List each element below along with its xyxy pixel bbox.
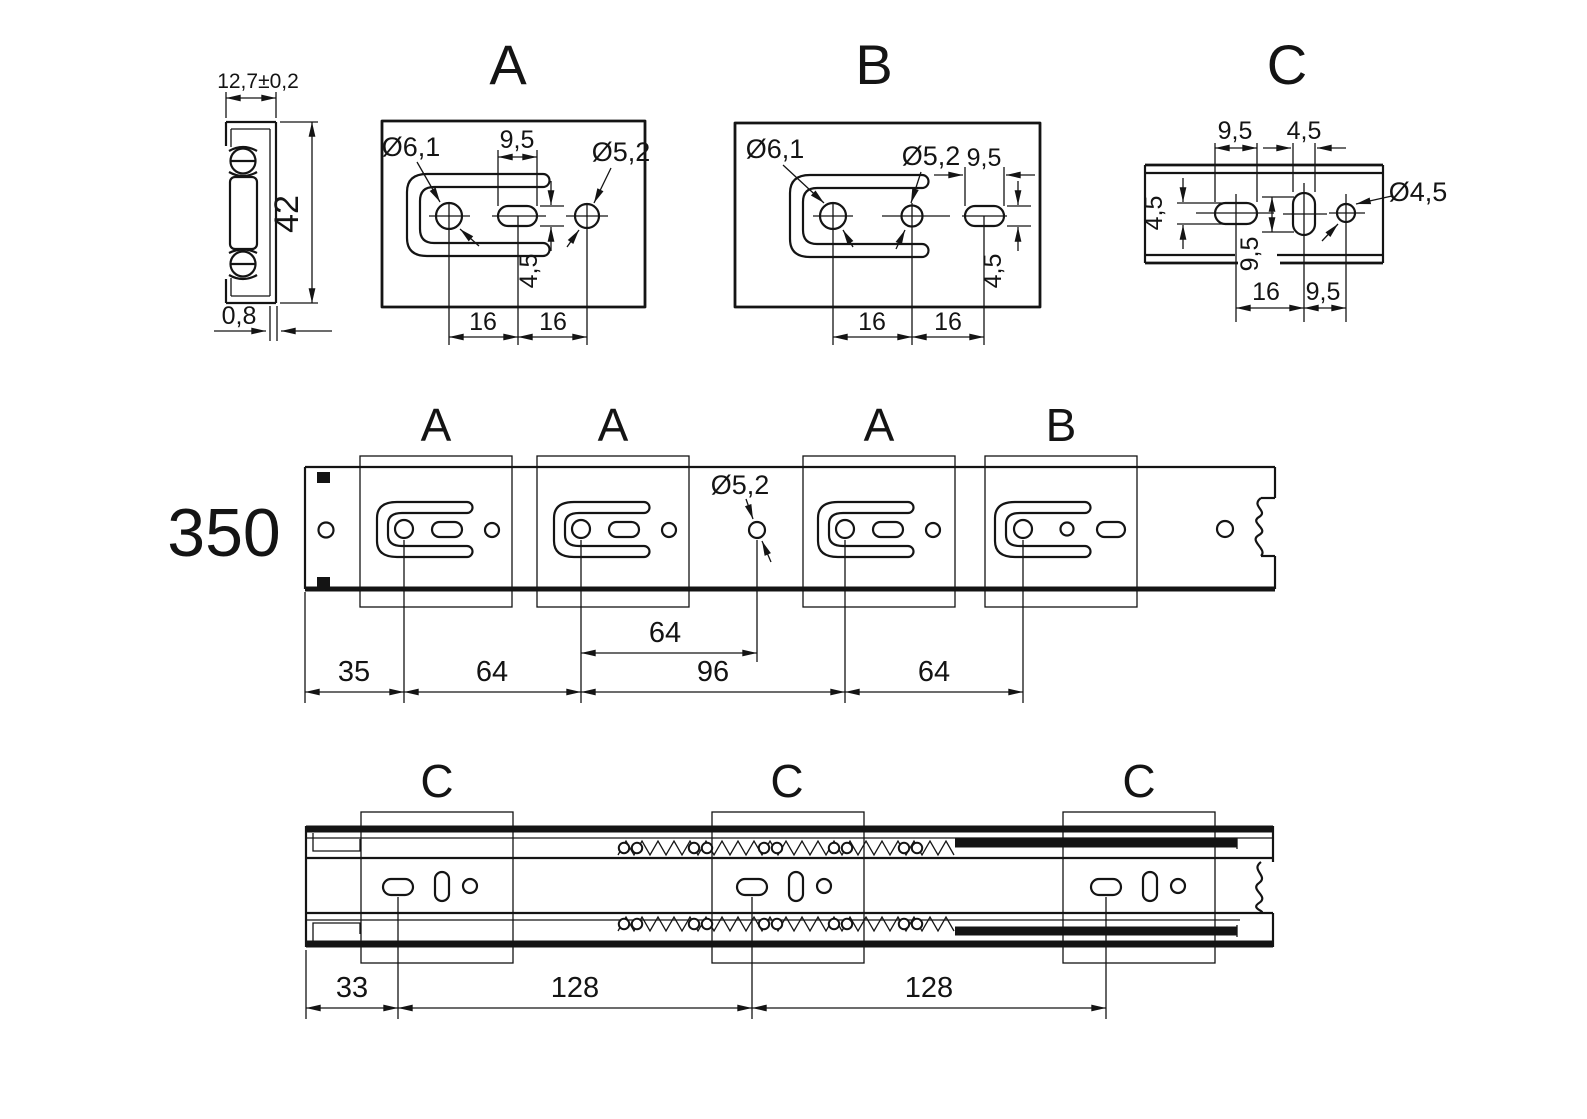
callout-label-c2: C	[770, 755, 803, 807]
end-latch-wave	[1256, 862, 1262, 913]
dim-text-c-pitch2: 9,5	[1306, 278, 1341, 306]
callout-label-a2: A	[598, 399, 629, 451]
end-clip-bottom	[317, 577, 330, 588]
rail-hole	[319, 523, 334, 538]
callout-box-a2	[537, 456, 689, 607]
dim-text-mid-3: 64	[918, 656, 950, 688]
inner-channel	[230, 177, 257, 249]
dim-text-a-pitch1: 16	[469, 308, 497, 336]
dim-text-cross-thickness: 0,8	[222, 302, 257, 330]
detail-a-view: A 9,5 4,5 Ø6,1 Ø5,2	[382, 33, 651, 345]
dim-text-c-hole-dia: Ø4,5	[1389, 177, 1448, 207]
dim-text-b-slot-width: 9,5	[967, 144, 1002, 172]
dim-text-mid-0: 35	[338, 656, 370, 688]
dim-text-b-hole2-dia: Ø5,2	[902, 141, 961, 171]
dim-text-b-hole-dia: Ø6,1	[746, 134, 805, 164]
detail-c-view: C 9,5 4,5 4,5	[1140, 33, 1447, 322]
dim-text-a-hole-dia: Ø6,1	[382, 132, 441, 162]
dim-text-c-slot-width: 9,5	[1218, 117, 1253, 145]
end-latch-wave	[1256, 498, 1263, 556]
middle-rail-view: 350 A A A B Ø5,2	[167, 399, 1275, 703]
dim-text-cross-width: 12,7±0,2	[217, 70, 299, 93]
detail-b-label: B	[855, 33, 892, 96]
cross-section-view: 12,7±0,2 42 0,8	[214, 70, 332, 341]
dim-text-b-pitch2: 16	[934, 308, 962, 336]
callout-box-c3	[1063, 812, 1215, 963]
dim-cross-thickness: 0,8	[214, 302, 332, 341]
dim-text-mid-2: 96	[697, 656, 729, 688]
callout-label-b: B	[1046, 399, 1077, 451]
technical-drawing-page: 12,7±0,2 42 0,8 A	[0, 0, 1587, 1119]
dim-text-b-pitch1: 16	[858, 308, 886, 336]
callout-box-a3	[803, 456, 955, 607]
dim-text-bot-2: 128	[905, 972, 953, 1004]
callout-label-a3: A	[864, 399, 895, 451]
dim-text-a-slot-width: 9,5	[500, 126, 535, 154]
dim-text-mid-hole-dia: Ø5,2	[711, 470, 770, 500]
drawer-slide-drawing: 12,7±0,2 42 0,8 A	[0, 0, 1587, 1119]
rail-length-label: 350	[167, 495, 280, 571]
rail-hole	[1217, 521, 1233, 537]
left-step-top	[313, 833, 360, 851]
callout-label-c1: C	[420, 755, 453, 807]
hole-5-2-callout	[749, 522, 765, 538]
dim-text-bot-1: 128	[551, 972, 599, 1004]
detail-a-label: A	[489, 33, 527, 96]
callout-label-c3: C	[1122, 755, 1155, 807]
dim-text-c-pitch1: 16	[1252, 278, 1280, 306]
dim-text-mid-1: 64	[476, 656, 508, 688]
detail-b-view: B 9,5 4,5 Ø6,1 Ø5,2	[735, 33, 1040, 345]
dim-text-c-slot2-width: 4,5	[1287, 117, 1322, 145]
detail-c-label: C	[1267, 33, 1307, 96]
dim-text-a-hole2-dia: Ø5,2	[592, 137, 651, 167]
dim-text-c-slot2-height: 9,5	[1236, 237, 1264, 272]
bottom-rail-view: C C C 33 128 128	[306, 755, 1273, 1019]
end-clip-top	[317, 472, 330, 483]
dim-text-mid-upper: 64	[649, 617, 681, 649]
dim-text-b-slot-height: 4,5	[979, 254, 1007, 289]
callout-label-a1: A	[421, 399, 452, 451]
dim-text-bot-0: 33	[336, 972, 368, 1004]
dim-text-cross-height: 42	[268, 195, 306, 233]
dim-text-a-pitch2: 16	[539, 308, 567, 336]
dim-cross-width: 12,7±0,2	[217, 70, 299, 118]
dim-text-a-slot-height: 4,5	[515, 254, 543, 289]
dim-text-c-slot-height: 4,5	[1140, 196, 1168, 231]
callout-box-a1	[360, 456, 512, 607]
left-step-bottom	[313, 923, 360, 941]
